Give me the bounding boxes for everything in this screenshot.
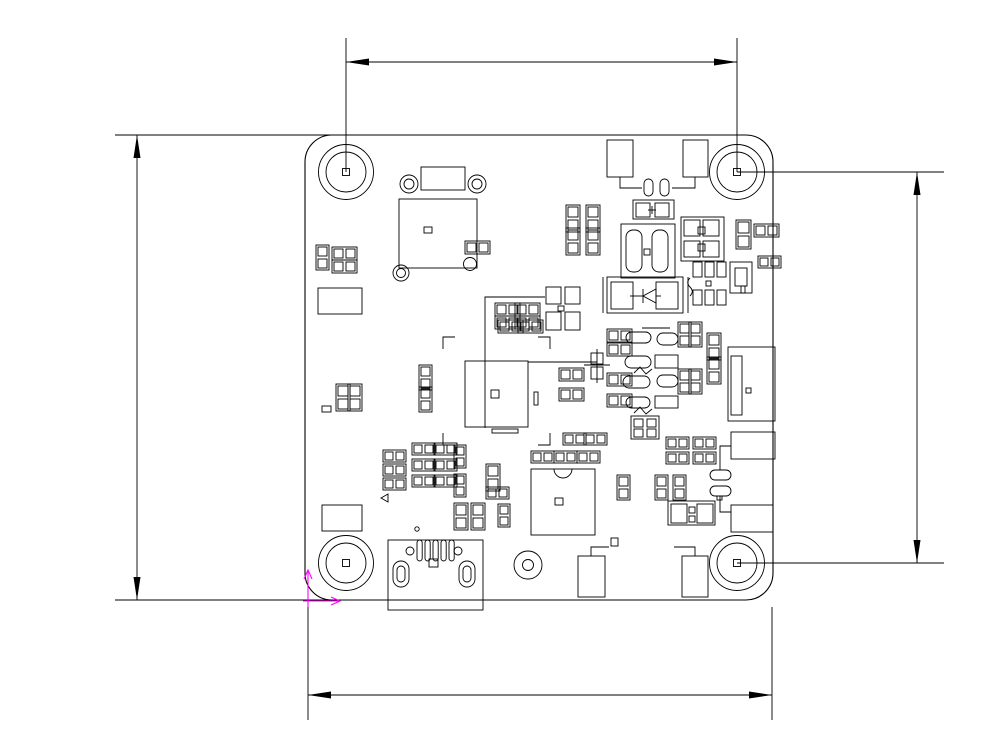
- dimension-top: [346, 38, 737, 172]
- bottom-right-module: [668, 501, 715, 525]
- oscillator-cluster: [584, 328, 678, 439]
- mounting-hole-bottom-left: [319, 536, 374, 591]
- top-edge-pads: [607, 140, 708, 196]
- board-outline: [305, 135, 773, 600]
- dimension-bottom: [308, 607, 772, 720]
- dimension-right: [775, 172, 944, 563]
- power-inductor: [621, 224, 675, 278]
- pin-header: [421, 167, 465, 190]
- test-point-right: [468, 175, 486, 193]
- capacitor-bank: [681, 217, 724, 261]
- mounting-hole-top-right: [710, 145, 945, 200]
- dimension-left: [115, 135, 340, 600]
- plated-hole: [514, 551, 542, 579]
- diode-package: [603, 277, 688, 313]
- mounting-hole-bottom-right: [710, 536, 945, 591]
- pcb-dimension-drawing: [0, 0, 990, 736]
- bga-chip: [399, 199, 477, 268]
- bottom-pad-group: [578, 538, 708, 597]
- right-edge-modules: [710, 432, 775, 532]
- capacitor-pair-plus: [633, 200, 674, 219]
- board-to-board-connector: [728, 347, 775, 421]
- passive-components: [316, 205, 781, 530]
- right-edge-caps: [730, 262, 752, 293]
- test-point-left: [400, 175, 418, 193]
- resistor-row: [688, 262, 726, 305]
- lcd-connector-area: [318, 288, 388, 531]
- via-pad: [464, 258, 477, 271]
- test-point-mid: [393, 265, 409, 281]
- usb-connector: [388, 527, 483, 610]
- drawing-canvas: [0, 0, 990, 736]
- soic-chip: [531, 469, 595, 535]
- capacitor-cluster-a: [546, 287, 580, 330]
